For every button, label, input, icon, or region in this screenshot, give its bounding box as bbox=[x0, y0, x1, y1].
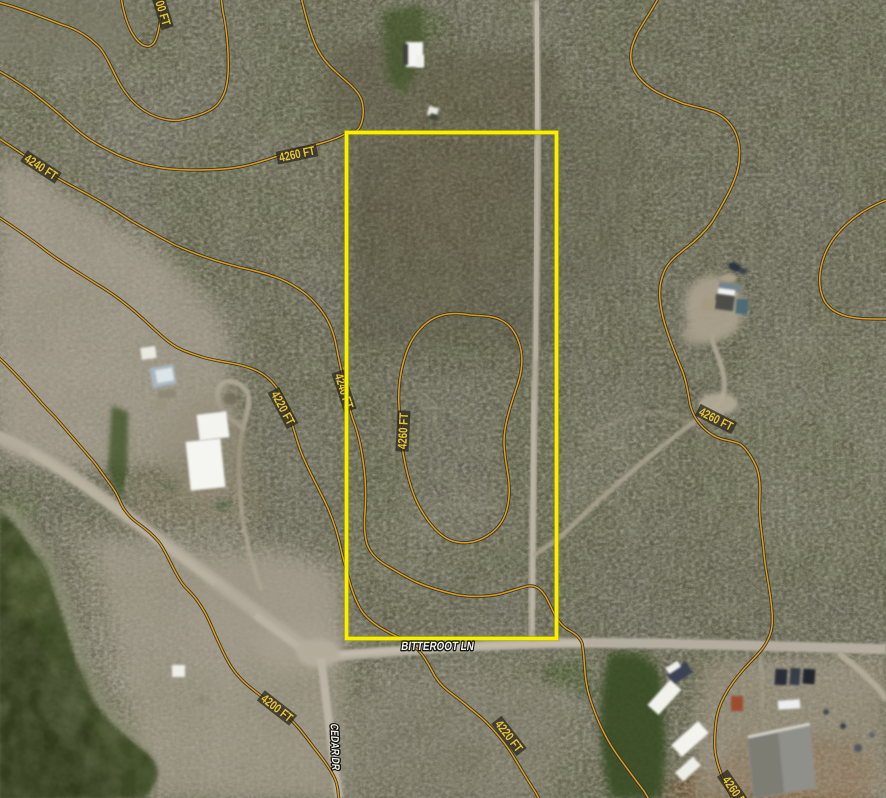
svg-text:CEDAR DR: CEDAR DR bbox=[327, 723, 341, 771]
svg-text:4260 FT: 4260 FT bbox=[396, 412, 411, 449]
svg-text:BITTEROOT LN: BITTEROOT LN bbox=[400, 640, 474, 653]
